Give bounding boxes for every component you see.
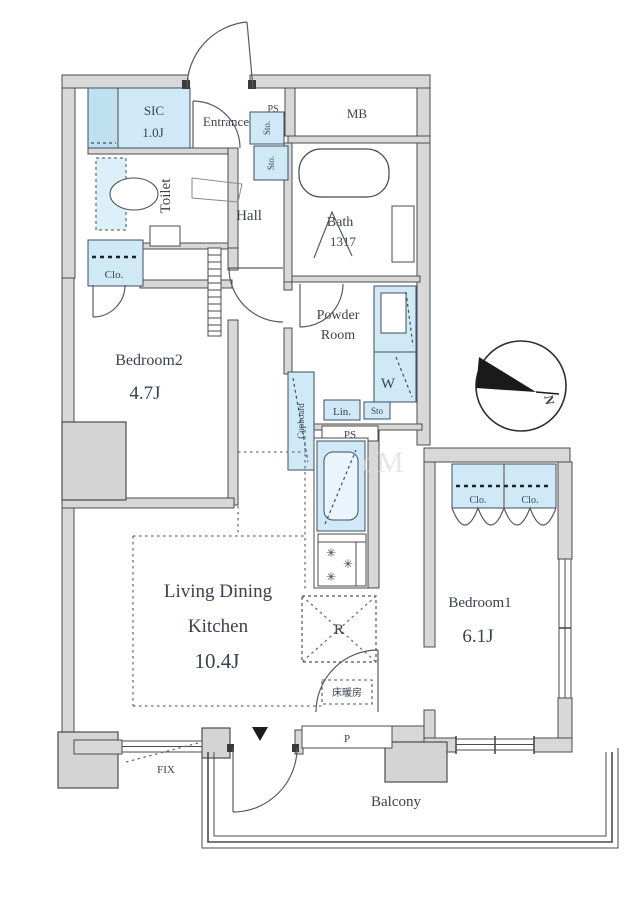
storage-top-2: Sto.	[254, 146, 288, 180]
storage-powder-label: Sto	[371, 406, 384, 416]
cupboard: Cupboard	[288, 372, 314, 470]
floor-heating-controller: 床暖房	[322, 680, 372, 704]
wall-segment	[285, 88, 295, 136]
storage-top-1-label: Sto.	[262, 121, 272, 135]
wall-segment	[88, 148, 234, 154]
cupboard-label: Cupboard	[296, 403, 306, 439]
bedroom2-label: Bedroom2	[115, 352, 183, 369]
wall-segment	[62, 508, 74, 740]
wall-segment	[424, 462, 435, 647]
wall-segment	[558, 698, 572, 740]
bedroom2-area: 4.7J	[129, 383, 160, 404]
ldk-area: 10.4J	[195, 649, 240, 673]
kitchen-sink	[324, 452, 358, 520]
ldk-label-2: Kitchen	[188, 616, 249, 637]
sic-area: 1.0J	[142, 125, 163, 140]
powder-room: W Powder Room Lin. Sto	[317, 286, 416, 420]
closet-bedroom2-label: Clo.	[105, 269, 124, 281]
powder-room-label-2: Room	[321, 328, 355, 343]
wall-segment	[424, 710, 435, 740]
burner-icon: ✳	[326, 546, 336, 560]
wall-segment	[228, 148, 238, 248]
wall-segment	[288, 136, 430, 143]
storage-top-1: Sto.	[250, 112, 284, 144]
floor-heating-label: 床暖房	[332, 686, 362, 699]
compass-north-arrow	[476, 357, 536, 392]
kitchen-counter: ✳ ✳ ✳	[314, 438, 368, 588]
bath-counter	[392, 206, 414, 262]
floor-plan-drawing: Balcony SIC 1.0J Entrance PS Sto. Sto. T…	[0, 0, 640, 901]
closet-bedroom1: Clo. Clo.	[452, 464, 556, 525]
stove: ✳ ✳ ✳	[318, 534, 366, 586]
wall-segment	[62, 88, 75, 278]
wall-segment	[284, 282, 292, 290]
bedroom1-bottom-window	[456, 736, 534, 754]
closet-folding-doors	[452, 508, 556, 525]
wall-segment	[228, 248, 238, 270]
closet-bedroom1-right-label: Clo.	[522, 495, 539, 506]
bath-label: Bath	[327, 215, 353, 230]
wall-segment	[424, 448, 570, 462]
pipe-duct: P	[302, 726, 392, 748]
bedroom1-label: Bedroom1	[448, 595, 511, 611]
balcony-door	[227, 744, 299, 812]
storage-powder: Sto	[364, 402, 390, 419]
compass-north-label: N	[541, 394, 558, 406]
bedroom2-closet-door	[93, 285, 125, 317]
duct-hatch	[208, 248, 221, 336]
bathtub	[299, 149, 389, 197]
floor-plan: Balcony SIC 1.0J Entrance PS Sto. Sto. T…	[0, 0, 640, 901]
wall-segment	[228, 320, 238, 505]
sic-label: SIC	[144, 103, 164, 118]
linen-cabinet: Lin.	[324, 400, 360, 420]
compass: N	[476, 341, 566, 431]
burner-icon: ✳	[326, 570, 336, 584]
pillar	[62, 422, 126, 500]
wall-segment	[62, 75, 188, 88]
meter-box-label: MB	[347, 106, 368, 121]
entrance-door	[182, 22, 256, 89]
bedroom1-area: 6.1J	[462, 626, 493, 647]
hall-label: Hall	[236, 208, 262, 224]
entry-direction-marker	[252, 727, 268, 741]
wall-segment	[534, 738, 572, 752]
wall-segment	[250, 75, 430, 88]
storage-top-2-label: Sto.	[266, 156, 276, 170]
wall-segment	[292, 276, 420, 282]
washing-machine: W	[374, 352, 416, 402]
ldk-label-1: Living Dining	[164, 581, 273, 602]
bedroom2-door	[229, 268, 283, 322]
burner-icon: ✳	[343, 557, 353, 571]
refrigerator-space: R	[302, 596, 376, 662]
fix-window: FIX	[122, 741, 202, 776]
wall-segment	[74, 740, 122, 754]
balcony-label: Balcony	[371, 794, 421, 810]
toilet-room: Toilet	[96, 158, 180, 246]
entrance-label: Entrance	[203, 114, 249, 129]
washer-label: W	[381, 376, 396, 392]
pillar	[385, 742, 447, 782]
toilet-label: Toilet	[158, 178, 174, 214]
bath-room: Bath 1317	[299, 149, 414, 262]
closet-bedroom2: Clo.	[88, 240, 143, 286]
wall-segment	[284, 328, 292, 374]
toilet-counter	[150, 226, 180, 246]
refrigerator-label: R	[334, 622, 344, 638]
fix-window-label: FIX	[157, 764, 175, 776]
sic-closet: SIC 1.0J	[88, 88, 190, 148]
sic-shelf	[88, 88, 118, 148]
linen-label: Lin.	[333, 406, 351, 418]
pillar	[202, 728, 230, 758]
toilet-bowl	[110, 178, 158, 210]
bedroom1-side-window	[559, 559, 571, 698]
closet-bedroom1-left-label: Clo.	[470, 495, 487, 506]
pipe-duct-label: P	[344, 733, 350, 745]
wall-segment	[558, 462, 572, 559]
watermark: oM	[362, 446, 404, 479]
